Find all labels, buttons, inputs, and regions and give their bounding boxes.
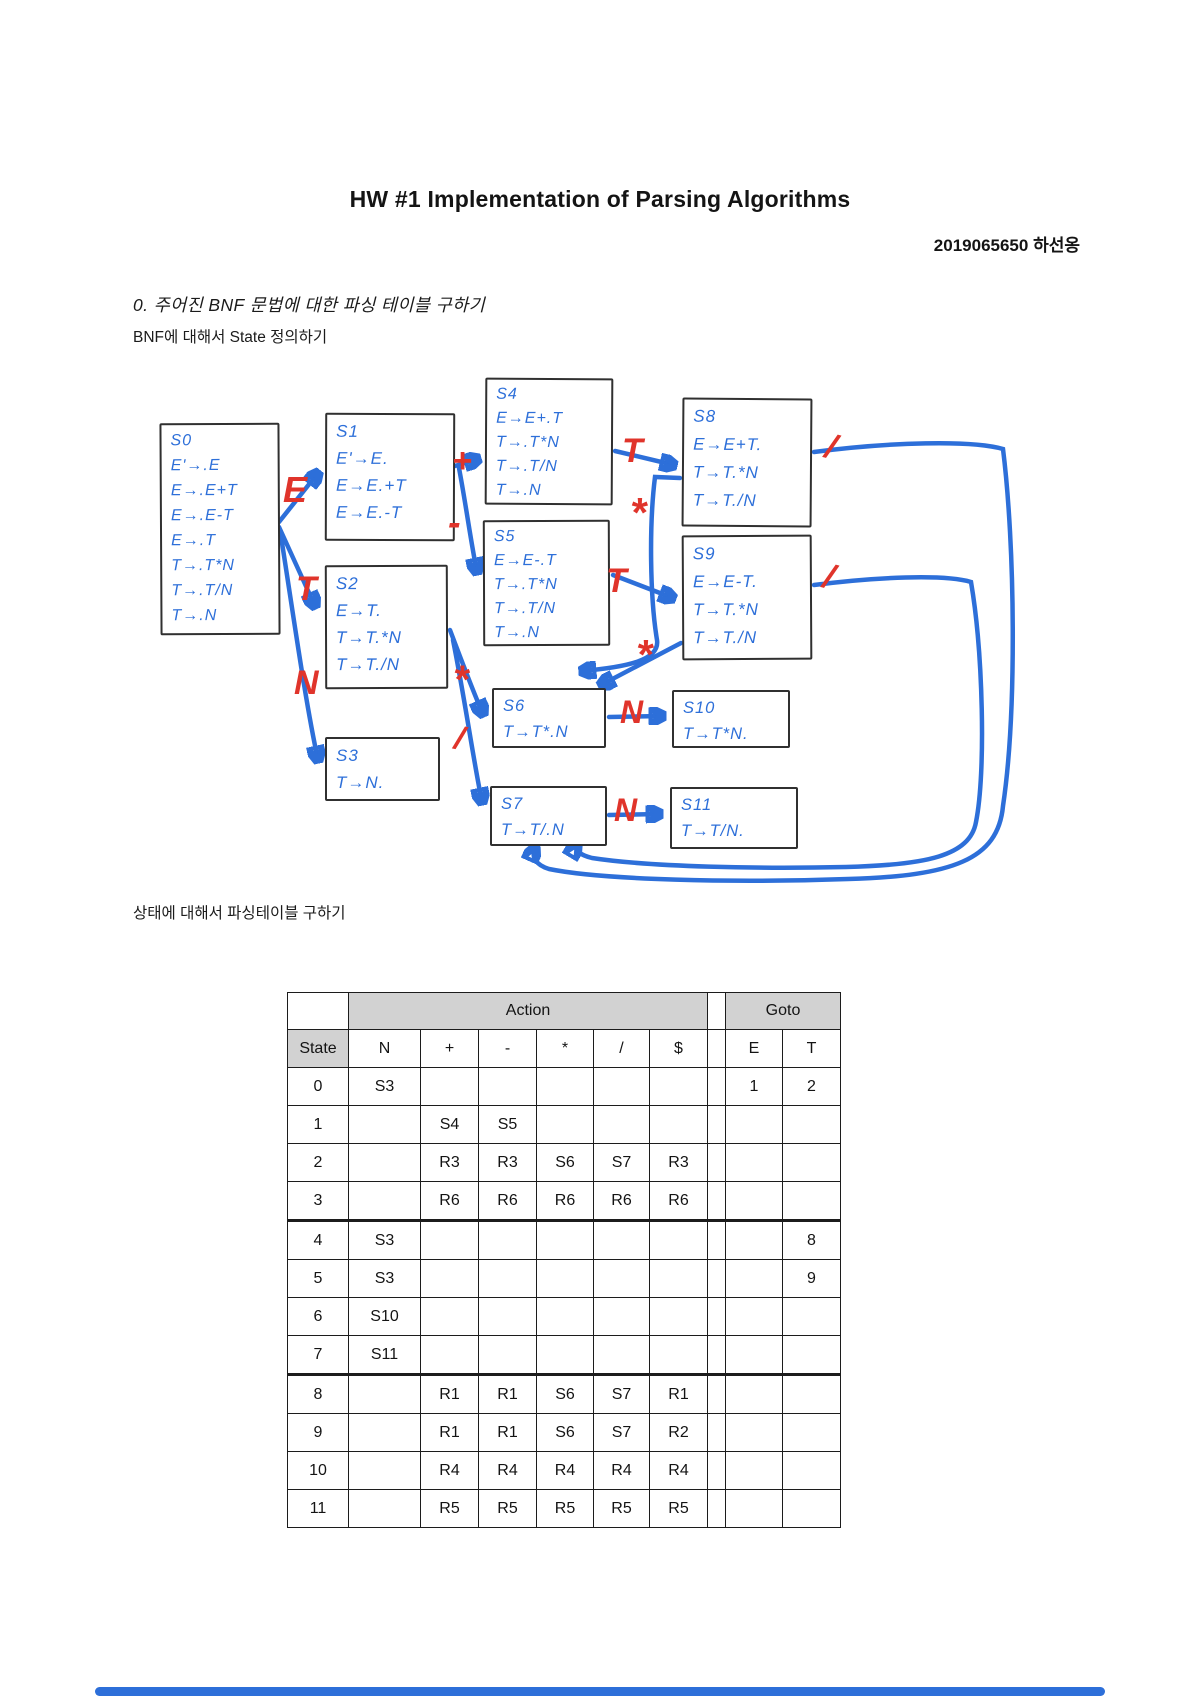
action-cell: S7 xyxy=(594,1144,650,1182)
state-item: T→T./N xyxy=(693,624,807,653)
table-row: 5 S3 9 xyxy=(288,1260,841,1298)
edge-label-T-s2: T xyxy=(296,572,317,606)
action-cell: R1 xyxy=(650,1375,708,1414)
goto-cell xyxy=(783,1336,841,1375)
state-item: T→T*N. xyxy=(683,721,785,747)
col-header-star: * xyxy=(537,1030,594,1068)
action-cell xyxy=(537,1106,594,1144)
state-cell: 6 xyxy=(288,1298,349,1336)
gap-cell xyxy=(708,1221,726,1260)
action-cell xyxy=(349,1414,421,1452)
gap-cell xyxy=(708,1452,726,1490)
state-item: T→.T*N xyxy=(496,431,608,456)
table-row: 8 R1 R1 S6 S7 R1 xyxy=(288,1375,841,1414)
action-cell xyxy=(594,1221,650,1260)
goto-cell: 9 xyxy=(783,1260,841,1298)
state-box-s5: S5 E→E-.T T→.T*N T→.T/N T→.N xyxy=(483,520,610,646)
state-box-s6: S6 T→T*.N xyxy=(492,688,606,748)
state-item: E'→E. xyxy=(336,445,450,472)
action-group-header: Action xyxy=(349,993,708,1030)
state-col-header: State xyxy=(288,1030,349,1068)
state-item: T→T/.N xyxy=(501,817,602,843)
action-cell: S6 xyxy=(537,1144,594,1182)
state-cell: 0 xyxy=(288,1068,349,1106)
state-item: T→.T*N xyxy=(494,573,605,597)
action-cell xyxy=(537,1298,594,1336)
action-cell: R2 xyxy=(650,1414,708,1452)
action-cell xyxy=(594,1068,650,1106)
action-cell xyxy=(479,1298,537,1336)
state-box-s8: S8 E→E+T. T→T.*N T→T./N xyxy=(682,398,813,528)
table-row: 10 R4 R4 R4 R4 R4 xyxy=(288,1452,841,1490)
state-id: S3 xyxy=(336,742,435,769)
action-cell: S7 xyxy=(594,1414,650,1452)
col-header-T: T xyxy=(783,1030,841,1068)
gap-cell xyxy=(708,1030,726,1068)
gap-cell xyxy=(708,1182,726,1221)
edge-label-plus: + xyxy=(452,444,472,478)
state-box-s1: S1 E'→E. E→E.+T E→E.-T xyxy=(325,413,455,541)
action-cell xyxy=(421,1260,479,1298)
state-cell: 3 xyxy=(288,1182,349,1221)
action-cell: R6 xyxy=(421,1182,479,1221)
gap-cell xyxy=(708,1336,726,1375)
action-cell: S5 xyxy=(479,1106,537,1144)
action-cell: R3 xyxy=(650,1144,708,1182)
state-item: T→.T/N xyxy=(171,578,275,604)
goto-cell xyxy=(726,1298,783,1336)
action-cell: R5 xyxy=(479,1490,537,1528)
action-cell: R6 xyxy=(594,1182,650,1221)
edge-label-slash-s8loop: / xyxy=(822,429,839,464)
state-id: S2 xyxy=(336,570,443,597)
state-item: T→.N xyxy=(171,603,275,629)
goto-cell xyxy=(726,1221,783,1260)
action-cell: R6 xyxy=(650,1182,708,1221)
action-cell xyxy=(537,1336,594,1375)
edge-label-star-s9s6: * xyxy=(636,634,652,676)
state-cell: 10 xyxy=(288,1452,349,1490)
goto-cell xyxy=(783,1490,841,1528)
goto-cell xyxy=(783,1182,841,1221)
action-cell xyxy=(421,1068,479,1106)
action-cell xyxy=(650,1106,708,1144)
action-cell: R4 xyxy=(650,1452,708,1490)
action-cell xyxy=(650,1068,708,1106)
table-group-header-row: Action Goto xyxy=(288,993,841,1030)
state-id: S9 xyxy=(693,540,807,569)
state-box-s11: S11 T→T/N. xyxy=(670,787,798,849)
action-cell xyxy=(650,1336,708,1375)
state-id: S6 xyxy=(503,693,601,719)
action-cell: R4 xyxy=(594,1452,650,1490)
goto-cell xyxy=(783,1452,841,1490)
action-cell xyxy=(537,1260,594,1298)
state-item: E→E-T. xyxy=(693,568,807,597)
gap-cell xyxy=(708,1375,726,1414)
gap-cell xyxy=(708,1144,726,1182)
state-item: T→T.*N xyxy=(336,624,443,651)
edge-label-star-s2s6: * xyxy=(453,660,469,700)
edge-label-T-s8: T xyxy=(622,434,643,468)
action-cell: S3 xyxy=(349,1068,421,1106)
goto-cell xyxy=(783,1106,841,1144)
action-cell xyxy=(479,1336,537,1375)
action-cell: R3 xyxy=(421,1144,479,1182)
action-cell xyxy=(537,1068,594,1106)
state-box-s4: S4 E→E+.T T→.T*N T→.T/N T→.N xyxy=(485,378,614,506)
goto-cell xyxy=(726,1414,783,1452)
goto-cell xyxy=(726,1452,783,1490)
page-title: HW #1 Implementation of Parsing Algorith… xyxy=(0,186,1200,213)
goto-cell: 1 xyxy=(726,1068,783,1106)
gap-cell xyxy=(708,1490,726,1528)
action-cell: S3 xyxy=(349,1221,421,1260)
state-box-s10: S10 T→T*N. xyxy=(672,690,790,748)
parsing-table: Action Goto State N + - * / $ E T 0 S3 xyxy=(287,992,841,1528)
action-cell: R1 xyxy=(479,1375,537,1414)
state-item: T→.N xyxy=(496,479,608,504)
gap-cell xyxy=(708,1414,726,1452)
state-item: E→E.-T xyxy=(336,499,450,526)
edge-label-slash-s9loop: / xyxy=(820,559,837,594)
gap-cell xyxy=(708,1260,726,1298)
edge-label-T-s9: T xyxy=(606,564,627,598)
action-cell: R5 xyxy=(650,1490,708,1528)
subheading-parsing-table: 상태에 대해서 파싱테이블 구하기 xyxy=(133,901,346,923)
action-cell xyxy=(349,1452,421,1490)
edge-label-N-s11: N xyxy=(614,794,637,826)
state-item: T→.T/N xyxy=(496,455,608,480)
state-cell: 5 xyxy=(288,1260,349,1298)
action-cell xyxy=(594,1106,650,1144)
action-cell: R3 xyxy=(479,1144,537,1182)
state-id: S4 xyxy=(496,383,608,408)
goto-cell xyxy=(783,1144,841,1182)
state-id: S0 xyxy=(170,428,274,454)
action-cell: R6 xyxy=(479,1182,537,1221)
state-item: T→T.*N xyxy=(693,459,807,488)
col-header-dollar: $ xyxy=(650,1030,708,1068)
author-line: 2019065650 하선옹 xyxy=(934,231,1080,256)
action-cell xyxy=(594,1336,650,1375)
state-item: T→T./N xyxy=(693,487,807,516)
edge-s0-s3 xyxy=(280,530,318,760)
action-cell: S10 xyxy=(349,1298,421,1336)
state-id: S8 xyxy=(693,403,807,432)
action-cell xyxy=(479,1221,537,1260)
document-page: HW #1 Implementation of Parsing Algorith… xyxy=(0,0,1200,1696)
col-header-plus: + xyxy=(421,1030,479,1068)
state-item: E→.E+T xyxy=(171,478,275,504)
action-cell xyxy=(594,1298,650,1336)
gap-cell xyxy=(708,1106,726,1144)
action-cell xyxy=(650,1260,708,1298)
state-cell: 4 xyxy=(288,1221,349,1260)
action-cell xyxy=(421,1336,479,1375)
state-id: S1 xyxy=(336,418,450,445)
state-id: S11 xyxy=(681,792,793,818)
table-row: 11 R5 R5 R5 R5 R5 xyxy=(288,1490,841,1528)
action-cell xyxy=(349,1144,421,1182)
action-cell: S7 xyxy=(594,1375,650,1414)
action-cell xyxy=(349,1375,421,1414)
state-item: T→T*.N xyxy=(503,719,601,745)
action-cell: S6 xyxy=(537,1375,594,1414)
edge-label-N-s3: N xyxy=(294,666,319,700)
edge-label-N-s10: N xyxy=(620,696,643,728)
state-cell: 1 xyxy=(288,1106,349,1144)
action-cell xyxy=(349,1106,421,1144)
state-item: E→E+T. xyxy=(693,431,807,460)
state-item: E→.E-T xyxy=(171,503,275,529)
action-cell: R5 xyxy=(421,1490,479,1528)
state-box-s3: S3 T→N. xyxy=(325,737,440,801)
state-id: S10 xyxy=(683,695,785,721)
action-cell xyxy=(479,1068,537,1106)
state-item: E→E.+T xyxy=(336,472,450,499)
state-item: T→T/N. xyxy=(681,818,793,844)
goto-cell: 8 xyxy=(783,1221,841,1260)
action-cell: S3 xyxy=(349,1260,421,1298)
state-item: E→T. xyxy=(336,597,443,624)
edge-label-star-s8s6: * xyxy=(630,492,646,534)
action-cell: R1 xyxy=(421,1414,479,1452)
state-item: E→.T xyxy=(171,528,275,554)
table-row: 1 S4 S5 xyxy=(288,1106,841,1144)
action-cell xyxy=(421,1298,479,1336)
action-cell: R5 xyxy=(594,1490,650,1528)
action-cell: S11 xyxy=(349,1336,421,1375)
state-item: E→E+.T xyxy=(496,407,608,432)
state-cell: 2 xyxy=(288,1144,349,1182)
goto-group-header: Goto xyxy=(726,993,841,1030)
state-box-s9: S9 E→E-T. T→T.*N T→T./N xyxy=(682,535,813,661)
goto-cell xyxy=(726,1260,783,1298)
edge-label-minus: - xyxy=(448,504,461,542)
action-cell xyxy=(479,1260,537,1298)
state-box-s0: S0 E'→.E E→.E+T E→.E-T E→.T T→.T*N T→.T/… xyxy=(159,423,280,636)
action-cell xyxy=(650,1298,708,1336)
state-cell: 7 xyxy=(288,1336,349,1375)
goto-cell xyxy=(726,1144,783,1182)
state-cell: 9 xyxy=(288,1414,349,1452)
state-box-s2: S2 E→T. T→T.*N T→T./N xyxy=(325,565,448,689)
action-cell: R4 xyxy=(479,1452,537,1490)
table-row: 2 R3 R3 S6 S7 R3 xyxy=(288,1144,841,1182)
col-header-N: N xyxy=(349,1030,421,1068)
subheading-define-states: BNF에 대해서 State 정의하기 xyxy=(133,325,327,347)
gap-cell xyxy=(708,1068,726,1106)
state-cell: 11 xyxy=(288,1490,349,1528)
action-cell: R5 xyxy=(537,1490,594,1528)
state-item: T→N. xyxy=(336,769,435,796)
state-item: E→E-.T xyxy=(494,549,605,573)
action-cell xyxy=(594,1260,650,1298)
state-item: E'→.E xyxy=(171,453,275,479)
action-cell: R6 xyxy=(537,1182,594,1221)
goto-cell xyxy=(726,1490,783,1528)
edge-label-slash-s2s7: / xyxy=(452,721,466,754)
action-cell: S6 xyxy=(537,1414,594,1452)
action-cell: R1 xyxy=(421,1375,479,1414)
goto-cell xyxy=(726,1375,783,1414)
gap-cell xyxy=(708,993,726,1030)
next-figure-edge xyxy=(95,1687,1105,1696)
state-id: S5 xyxy=(494,525,605,549)
parsing-table-wrap: Action Goto State N + - * / $ E T 0 S3 xyxy=(287,992,841,1528)
state-id: S7 xyxy=(501,791,602,817)
state-box-s7: S7 T→T/.N xyxy=(490,786,607,846)
edge-label-E: E xyxy=(283,472,307,508)
goto-cell xyxy=(726,1336,783,1375)
goto-cell: 2 xyxy=(783,1068,841,1106)
col-header-E: E xyxy=(726,1030,783,1068)
edge-s1-s5 xyxy=(459,468,477,572)
section-heading: 0. 주어진 BNF 문법에 대한 파싱 테이블 구하기 xyxy=(133,292,485,317)
table-row: 3 R6 R6 R6 R6 R6 xyxy=(288,1182,841,1221)
action-cell: R4 xyxy=(421,1452,479,1490)
table-header-row: State N + - * / $ E T xyxy=(288,1030,841,1068)
state-item: T→.T*N xyxy=(171,553,275,579)
col-header-slash: / xyxy=(594,1030,650,1068)
state-item: T→.N xyxy=(494,621,605,645)
goto-cell xyxy=(783,1298,841,1336)
state-item: T→T./N xyxy=(336,651,443,678)
action-cell xyxy=(537,1221,594,1260)
action-cell xyxy=(421,1221,479,1260)
col-header-minus: - xyxy=(479,1030,537,1068)
action-cell xyxy=(349,1490,421,1528)
goto-cell xyxy=(726,1182,783,1221)
state-cell: 8 xyxy=(288,1375,349,1414)
action-cell xyxy=(650,1221,708,1260)
action-cell: R4 xyxy=(537,1452,594,1490)
table-row: 0 S3 1 2 xyxy=(288,1068,841,1106)
table-row: 4 S3 8 xyxy=(288,1221,841,1260)
table-row: 6 S10 xyxy=(288,1298,841,1336)
gap-cell xyxy=(708,1298,726,1336)
table-row: 7 S11 xyxy=(288,1336,841,1375)
action-cell: S4 xyxy=(421,1106,479,1144)
table-row: 9 R1 R1 S6 S7 R2 xyxy=(288,1414,841,1452)
goto-cell xyxy=(726,1106,783,1144)
goto-cell xyxy=(783,1414,841,1452)
action-cell: R1 xyxy=(479,1414,537,1452)
state-item: T→.T/N xyxy=(494,597,605,621)
goto-cell xyxy=(783,1375,841,1414)
state-item: T→T.*N xyxy=(693,596,807,625)
corner-blank xyxy=(288,993,349,1030)
action-cell xyxy=(349,1182,421,1221)
